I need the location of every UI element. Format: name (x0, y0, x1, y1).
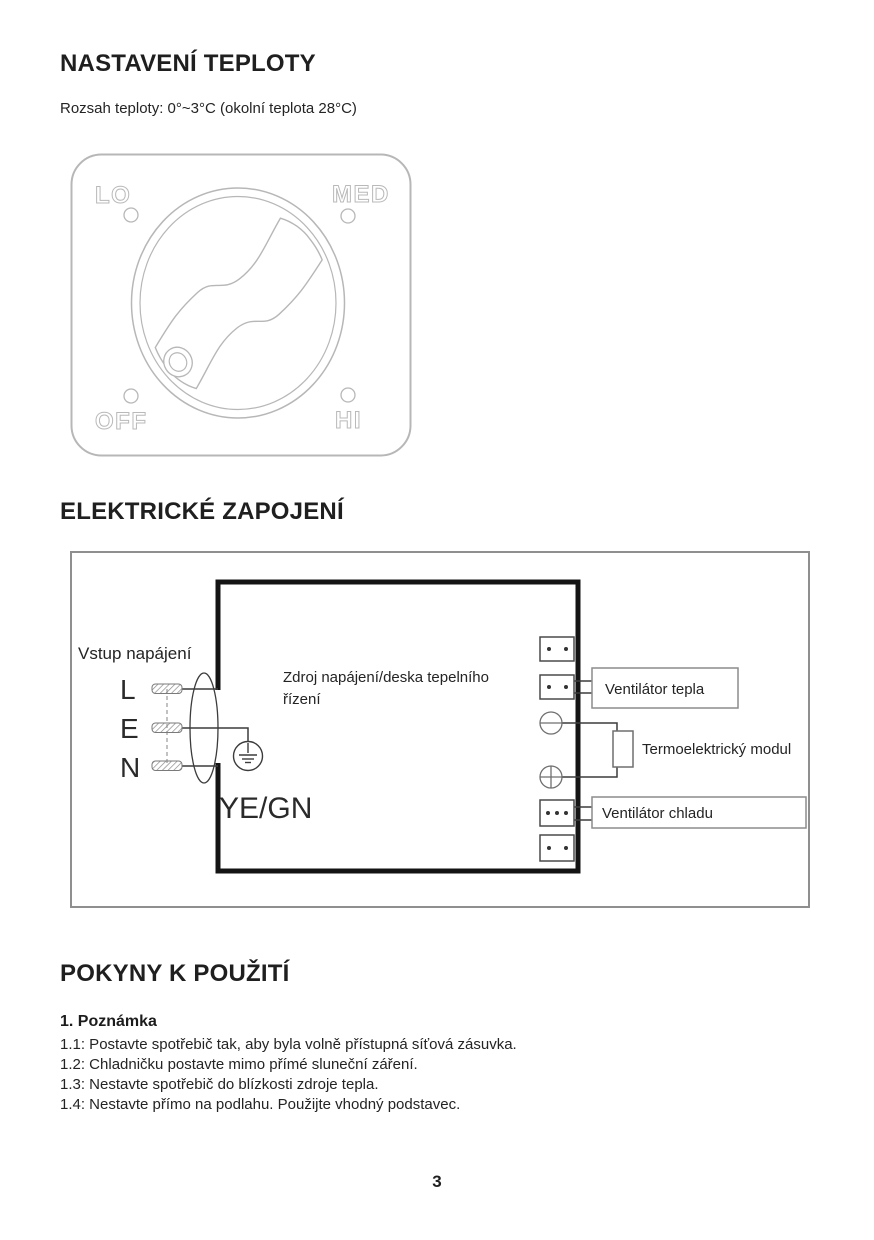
earth-ground-symbol (234, 742, 263, 771)
thermo-plus-terminal (540, 766, 562, 788)
temperature-section-title: NASTAVENÍ TEPLOTY (60, 50, 316, 78)
page-number: 3 (0, 1172, 874, 1192)
terminal-block-l (152, 684, 182, 694)
note-heading: 1. Poznámka (60, 1013, 157, 1031)
note-item-2: 1.2: Chladničku postavte mimo přímé slun… (60, 1055, 517, 1075)
wire-color-label: YE/GN (219, 792, 312, 825)
fan-heat-label: Ventilátor tepla (605, 681, 705, 698)
note-item-1: 1.1: Postavte spotřebič tak, aby byla vo… (60, 1035, 517, 1055)
dial-label-lo: LO (95, 182, 131, 209)
note-item-4: 1.4: Nestavte přímo na podlahu. Použijte… (60, 1095, 517, 1115)
dial-label-off: OFF (95, 408, 148, 435)
connector-2pin-bottom (540, 835, 574, 861)
thermo-module-body (613, 731, 633, 767)
connector-2pin-top (540, 637, 574, 661)
board-label-line2: řízení (283, 691, 321, 708)
wiring-section-title: ELEKTRICKÉ ZAPOJENÍ (60, 498, 344, 526)
terminal-letter-n: N (120, 752, 140, 783)
terminal-letter-l: L (120, 674, 136, 705)
note-list: 1.1: Postavte spotřebič tak, aby byla vo… (60, 1035, 517, 1115)
connector-2pin-heat-fan (540, 675, 574, 699)
dial-label-hi: HI (335, 407, 362, 434)
temperature-dial-diagram: LO MED OFF HI (70, 153, 412, 457)
note-item-3: 1.3: Nestavte spotřebič do blízkosti zdr… (60, 1075, 517, 1095)
board-label-line1: Zdroj napájení/deska tepelního (283, 669, 489, 686)
thermo-minus-terminal (540, 712, 562, 734)
terminal-block-e (152, 723, 182, 733)
thermo-module-label: Termoelektrický modul (642, 741, 791, 758)
fan-cool-label: Ventilátor chladu (602, 805, 713, 822)
terminal-block-n (152, 761, 182, 771)
temperature-range-text: Rozsah teploty: 0°~3°C (okolní teplota 2… (60, 100, 357, 117)
power-input-label: Vstup napájení (78, 644, 192, 663)
dial-label-med: MED (332, 181, 390, 208)
instructions-section-title: POKYNY K POUŽITÍ (60, 960, 289, 988)
wiring-diagram: Vstup napájení L E N YE/GN Zdroj napájen… (70, 551, 810, 908)
terminal-letter-e: E (120, 713, 139, 744)
